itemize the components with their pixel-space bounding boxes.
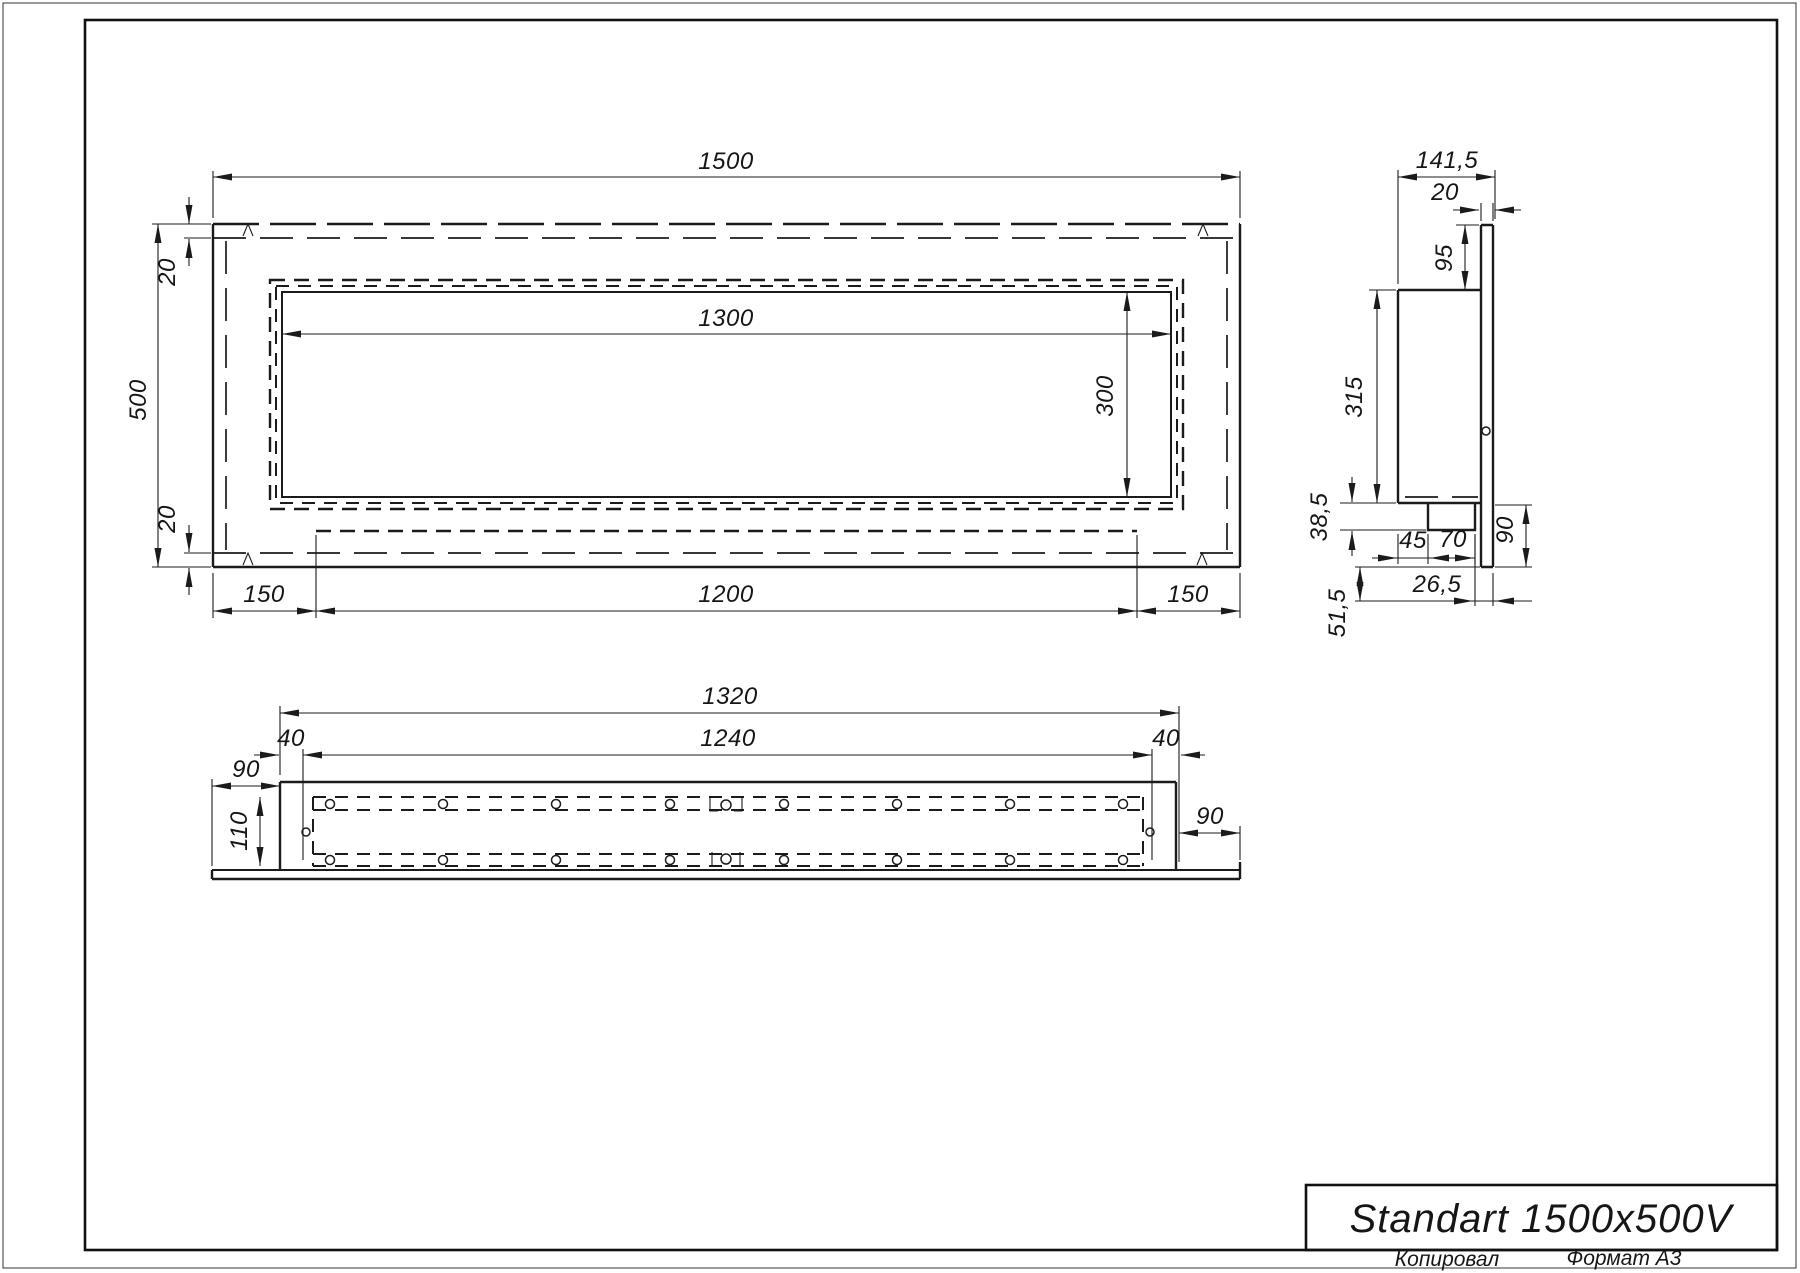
drawing-sheet: 1500 500 20 20 1300 300 bbox=[0, 0, 1800, 1273]
side-tray-height-label: 38,5 bbox=[1306, 492, 1333, 541]
bottom-inset-left-label: 40 bbox=[277, 725, 305, 752]
opening-width-dim: 1300 bbox=[282, 305, 1171, 334]
bottom-overhang-right-label: 90 bbox=[1196, 803, 1224, 830]
drawing-frame bbox=[3, 3, 1796, 1268]
front-offset-right-label: 150 bbox=[1167, 581, 1209, 608]
bottom-overhang-left-label: 90 bbox=[232, 756, 260, 783]
sheet-outer-border bbox=[3, 3, 1796, 1268]
back-panel-hole bbox=[1482, 427, 1490, 435]
bottom-depth-dim: 110 bbox=[226, 797, 260, 866]
chamber-hidden-edges bbox=[313, 797, 1143, 866]
side-depth-label: 141,5 bbox=[1416, 147, 1479, 174]
title-block: Standart 1500x500V Копировал Формат А3 bbox=[1306, 1185, 1777, 1271]
side-top-inset-label: 95 bbox=[1431, 244, 1458, 272]
front-bottom-dims: 150 1200 150 bbox=[213, 535, 1240, 618]
front-height-label: 500 bbox=[125, 379, 152, 421]
bottom-outer-width-label: 1320 bbox=[702, 683, 758, 710]
front-view: 1500 500 20 20 1300 300 bbox=[125, 148, 1240, 618]
bottom-depth-label: 110 bbox=[226, 811, 253, 851]
side-bottom-drop-label: 51,5 bbox=[1324, 588, 1351, 637]
side-panel-thickness-dim: 20 bbox=[1430, 179, 1521, 221]
side-panel-thickness-label: 20 bbox=[1430, 179, 1459, 206]
drawing-title: Standart 1500x500V bbox=[1350, 1197, 1735, 1241]
bottom-inner-width-dims: 40 1240 40 bbox=[254, 725, 1205, 860]
side-view: 141,5 20 95 315 38,5 bbox=[1306, 147, 1532, 637]
side-bracket-height-dim: 90 bbox=[1492, 505, 1532, 567]
format-label: Формат А3 bbox=[1567, 1247, 1682, 1270]
side-body-height-dim: 315 bbox=[1341, 290, 1396, 503]
side-tray-offset-label: 45 bbox=[1399, 527, 1427, 554]
opening-width-label: 1300 bbox=[698, 305, 754, 332]
front-width-label: 1500 bbox=[698, 148, 754, 175]
side-bracket-height-label: 90 bbox=[1492, 516, 1519, 544]
side-rear-gap-label: 26,5 bbox=[1412, 571, 1462, 598]
side-tray-dims: 45 70 bbox=[1372, 526, 1475, 564]
bottom-inner-width-label: 1240 bbox=[700, 725, 756, 752]
front-flange-bottom-label: 20 bbox=[154, 505, 181, 534]
side-tray-depth-label: 70 bbox=[1439, 526, 1467, 553]
front-width-dim: 1500 bbox=[213, 148, 1240, 218]
bottom-view: 1320 40 1240 40 90 110 90 bbox=[212, 683, 1240, 879]
bottom-overhang-right-dim: 90 bbox=[1179, 803, 1240, 860]
opening-height-dim: 300 bbox=[1092, 292, 1127, 497]
opening-height-label: 300 bbox=[1092, 375, 1119, 417]
bottom-outer-width-dim: 1320 bbox=[280, 683, 1179, 862]
front-tray-width-label: 1200 bbox=[698, 581, 754, 608]
side-top-inset-dim: 95 bbox=[1431, 225, 1479, 290]
bottom-inset-right-label: 40 bbox=[1152, 725, 1180, 752]
mount-slot-marks bbox=[243, 224, 1208, 565]
front-flange-bottom-dim: 20 bbox=[154, 505, 211, 595]
sheet-inner-frame bbox=[85, 20, 1777, 1250]
technical-drawing: 1500 500 20 20 1300 300 bbox=[0, 0, 1800, 1273]
side-body-height-label: 315 bbox=[1341, 376, 1368, 418]
front-flange-top-dim: 20 bbox=[154, 197, 211, 287]
front-flange-top-label: 20 bbox=[154, 258, 181, 287]
copied-label: Копировал bbox=[1395, 1248, 1500, 1271]
side-back-panel bbox=[1481, 225, 1493, 567]
front-offset-left-label: 150 bbox=[243, 581, 285, 608]
